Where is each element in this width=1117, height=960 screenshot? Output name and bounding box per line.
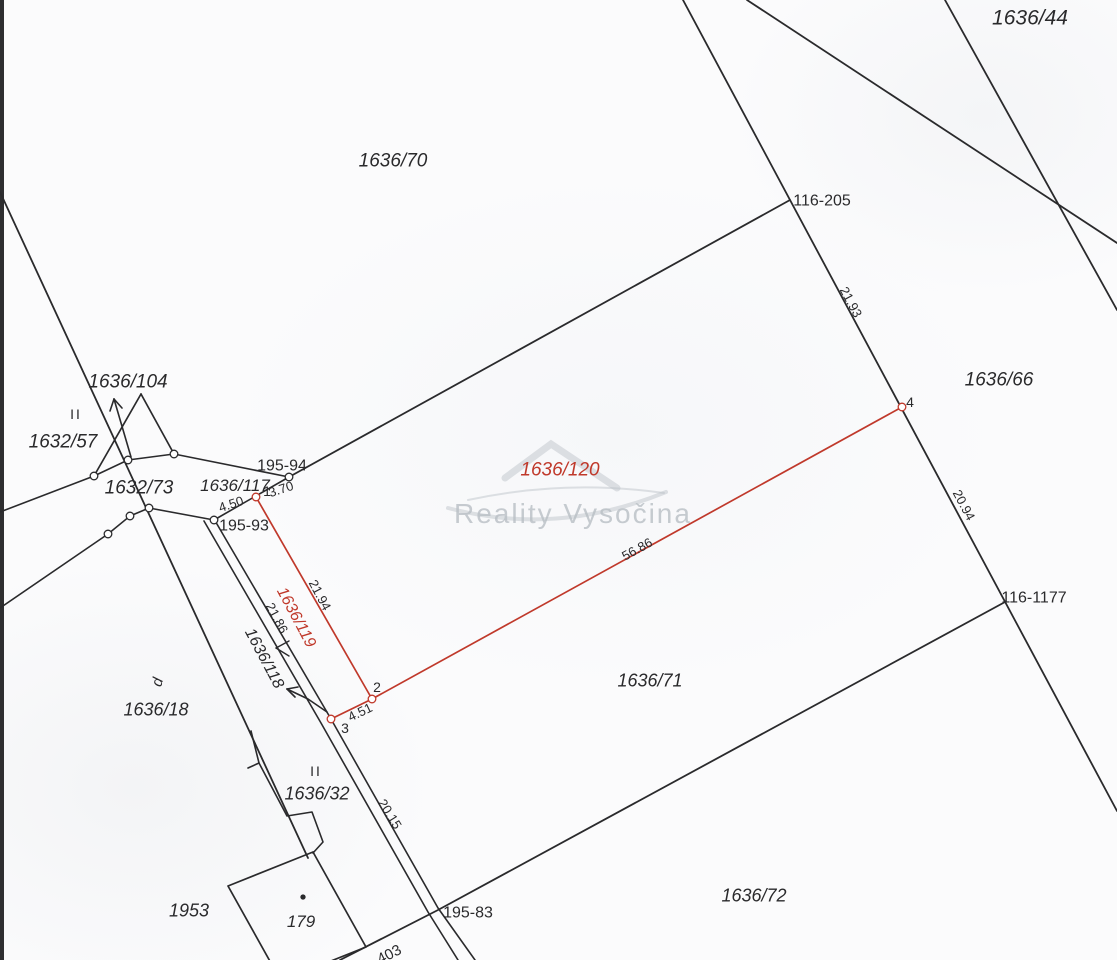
strip-tick-lower — [276, 648, 289, 656]
parcel-label-1636-104: 1636/104 — [88, 372, 167, 393]
vertex-1 — [252, 493, 260, 501]
parcel-label-1632-57: 1632/57 — [29, 432, 99, 453]
parcel-label-1636-120: 1636/120 — [520, 460, 600, 481]
parcel-label-1636-18: 1636/18 — [123, 699, 188, 719]
survey-point-f — [104, 530, 112, 538]
vertex-2 — [368, 695, 376, 703]
symbol-II-west: II — [70, 406, 82, 422]
label-arrow-head-a — [287, 687, 298, 689]
north-arrow-head-l — [110, 399, 114, 411]
measure-56-86: 56.86 — [619, 535, 655, 564]
survey-point-a — [124, 456, 132, 464]
survey-point-e — [126, 512, 134, 520]
vertex-3 — [327, 715, 335, 723]
vertex-label-2: 2 — [373, 679, 381, 695]
building-179-dot — [301, 895, 305, 899]
triangle-1636-104-left — [94, 394, 141, 476]
point-label-partial-403: 403 — [374, 941, 404, 960]
cadastral-map-canvas: Reality Vysočina1636/441636/701636/66163… — [0, 0, 1117, 960]
boundary-1636-71-72 — [340, 602, 1005, 960]
point-label-195-93: 195-93 — [219, 518, 269, 535]
road-strip-west — [204, 521, 458, 960]
boundary-1636-44-west — [945, 0, 1117, 310]
measure-3-70: 3.70 — [267, 478, 296, 500]
parcel-label-179: 179 — [287, 912, 316, 931]
point-label-195-83: 195-83 — [443, 905, 493, 922]
parcel-label-1632-73: 1632/73 — [105, 478, 174, 499]
parcel-label-1636-117: 1636/117 — [200, 476, 270, 495]
point-label-116-205: 116-205 — [793, 193, 851, 210]
survey-point-b — [170, 450, 178, 458]
point-label-195-94: 195-94 — [257, 458, 307, 475]
scanned-cadastral-map: Reality Vysočina1636/441636/701636/66163… — [0, 0, 1117, 960]
survey-point-c — [90, 472, 98, 480]
watermark-text: Reality Vysočina — [454, 498, 692, 529]
vertex-label-4: 4 — [906, 394, 914, 410]
measure-21-94: 21.94 — [306, 577, 335, 613]
measure-4-51: 4.51 — [345, 700, 374, 725]
parcel-label-1636-72: 1636/72 — [721, 885, 786, 905]
symbol-II-south: II — [310, 763, 322, 779]
vertex-4 — [898, 403, 906, 411]
boundary-chain-south — [0, 508, 214, 608]
parcel-label-1636-70: 1636/70 — [359, 151, 428, 172]
parcel-label-1636-32: 1636/32 — [284, 783, 349, 803]
measure-21-93: 21.93 — [837, 284, 866, 320]
vertex-label-3: 3 — [341, 720, 349, 736]
parcel-label-1636-44: 1636/44 — [992, 6, 1068, 29]
survey-point-195-94 — [285, 473, 293, 481]
measure-4-50: 4.50 — [217, 493, 246, 515]
triangle-1636-104-right — [141, 394, 174, 454]
survey-point-d — [145, 504, 153, 512]
parcel-label-1953: 1953 — [169, 900, 209, 920]
survey-point-195-93 — [210, 516, 218, 524]
symbol-landuse-d: d — [148, 675, 167, 688]
parcel-label-1636-71: 1636/71 — [617, 670, 682, 690]
parcel-label-1636-118: 1636/118 — [241, 626, 287, 692]
building-179-outline — [228, 852, 366, 960]
point-label-116-1177: 116-1177 — [1001, 590, 1066, 607]
parcel-label-1636-66: 1636/66 — [965, 370, 1034, 391]
boundary-1636-71-north — [289, 200, 790, 477]
